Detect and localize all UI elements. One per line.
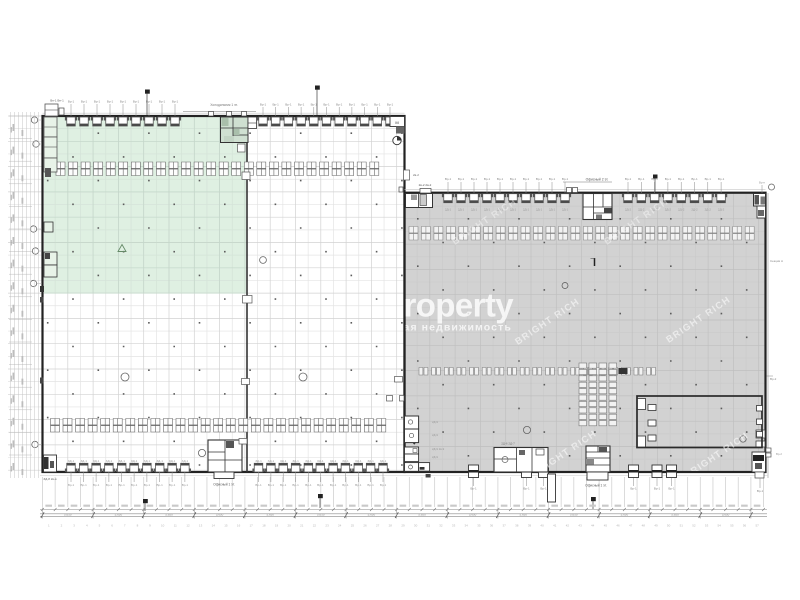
svg-text:Вр-1: Вр-1: [361, 103, 368, 107]
svg-text:Вр-1: Вр-1: [317, 483, 324, 487]
svg-text:36: 36: [490, 524, 494, 528]
svg-text:Вр-1: Вр-1: [292, 483, 299, 487]
svg-text:Вр-1: Вр-1: [68, 100, 75, 104]
svg-text:ЗД-1: ЗД-1: [280, 459, 287, 463]
svg-text:2Д-2: 2Д-2: [625, 208, 632, 212]
svg-text:Офисный 2 эт.: Офисный 2 эт.: [586, 178, 609, 182]
svg-text:Холодильник 1 эт.: Холодильник 1 эт.: [210, 103, 238, 107]
svg-text:ЗД-1: ЗД-1: [380, 459, 387, 463]
svg-text:Вр-1: Вр-1: [471, 177, 478, 181]
svg-text:28: 28: [389, 524, 393, 528]
svg-text:Вр-1: Вр-1: [120, 100, 127, 104]
svg-text:2Д-9: 2Д-9: [432, 433, 438, 437]
svg-text:50: 50: [667, 524, 671, 528]
svg-text:Вр-1: Вр-1: [280, 483, 287, 487]
svg-text:2Д-1: 2Д-1: [445, 208, 452, 212]
svg-text:Вр-1: Вр-1: [81, 100, 88, 104]
svg-text:Вр-1: Вр-1: [625, 177, 632, 181]
svg-text:41: 41: [553, 524, 557, 528]
svg-text:ЗД-1: ЗД-1: [255, 459, 262, 463]
svg-text:Вр-1: Вр-1: [470, 487, 477, 491]
svg-text:2Д-9 2в-9: 2Д-9 2в-9: [432, 447, 445, 451]
svg-text:ЗД-1: ЗД-1: [144, 459, 151, 463]
svg-text:Вр-1: Вр-1: [630, 487, 637, 491]
svg-text:Вр-1: Вр-1: [523, 177, 530, 181]
svg-text:Вр-1: Вр-1: [638, 177, 645, 181]
svg-text:ЗД-1: ЗД-1: [355, 459, 362, 463]
svg-text:Вр-1: Вр-1: [182, 483, 189, 487]
svg-text:Вр-1: Вр-1: [159, 100, 166, 104]
svg-text:ЗД-1: ЗД-1: [106, 459, 113, 463]
svg-text:5,650: 5,650: [519, 513, 527, 517]
svg-text:ЗД-1: ЗД-1: [169, 459, 176, 463]
svg-text:5,650: 5,650: [722, 513, 730, 517]
svg-text:51: 51: [680, 524, 684, 528]
svg-text:31: 31: [427, 524, 431, 528]
svg-text:2Д-1: 2Д-1: [458, 208, 465, 212]
svg-text:Вр-1: Вр-1: [523, 487, 530, 491]
svg-text:2Д-6 2Д-7: 2Д-6 2Д-7: [501, 442, 515, 446]
svg-text:22: 22: [313, 524, 317, 528]
svg-text:Вр-1: Вр-1: [458, 177, 465, 181]
svg-text:ЗД-1: ЗД-1: [317, 459, 324, 463]
svg-text:49: 49: [654, 524, 658, 528]
svg-text:Вр-1: Вр-1: [484, 177, 491, 181]
svg-text:Вр-1: Вр-1: [268, 483, 275, 487]
svg-text:Вр-1: Вр-1: [133, 100, 140, 104]
svg-text:45: 45: [604, 524, 608, 528]
svg-text:18: 18: [262, 524, 266, 528]
svg-text:ЗД-1: ЗД-1: [182, 459, 189, 463]
svg-text:19: 19: [275, 524, 279, 528]
svg-text:5,650: 5,650: [418, 513, 426, 517]
svg-text:27: 27: [376, 524, 380, 528]
svg-text:Вр-1: Вр-1: [323, 103, 330, 107]
svg-text:26: 26: [363, 524, 367, 528]
svg-text:29: 29: [401, 524, 405, 528]
svg-text:2Д-2: 2Д-2: [705, 208, 712, 212]
svg-text:ЗД-1: ЗД-1: [292, 459, 299, 463]
svg-text:Вр-1: Вр-1: [68, 483, 75, 487]
svg-text:42: 42: [566, 524, 570, 528]
svg-text:23: 23: [325, 524, 329, 528]
svg-text:Вр-1: Вр-1: [536, 177, 543, 181]
svg-text:35: 35: [477, 524, 481, 528]
svg-text:ЗД-8 2в-в: ЗД-8 2в-в: [43, 477, 57, 481]
svg-text:Вр-1: Вр-1: [144, 483, 151, 487]
svg-text:5,650: 5,650: [165, 513, 173, 517]
svg-text:13: 13: [199, 524, 203, 528]
svg-text:Вр-1: Вр-1: [387, 103, 394, 107]
svg-text:Вр-1: Вр-1: [107, 100, 114, 104]
svg-text:2в-2 2в-2: 2в-2 2в-2: [419, 183, 432, 187]
svg-text:Вр-1: Вр-1: [380, 483, 387, 487]
svg-text:Вр-1: Вр-1: [255, 483, 262, 487]
svg-text:5,650: 5,650: [216, 513, 224, 517]
svg-text:21: 21: [300, 524, 304, 528]
svg-text:11: 11: [174, 524, 177, 528]
svg-text:Вр-1: Вр-1: [106, 483, 113, 487]
svg-text:Вр-1: Вр-1: [172, 100, 179, 104]
svg-text:44: 44: [591, 524, 595, 528]
svg-text:53: 53: [705, 524, 709, 528]
svg-text:Вр-1: Вр-1: [355, 483, 362, 487]
svg-text:Вн-1 Вн-1: Вн-1 Вн-1: [50, 99, 64, 103]
svg-text:Вр-1: Вр-1: [374, 103, 381, 107]
svg-text:2Д-1: 2Д-1: [471, 208, 478, 212]
svg-text:17: 17: [250, 524, 254, 528]
svg-text:57: 57: [756, 524, 760, 528]
svg-text:Вр-2: Вр-2: [776, 452, 782, 456]
svg-text:Вр-1: Вр-1: [260, 103, 267, 107]
svg-text:Вр-1: Вр-1: [510, 177, 517, 181]
svg-text:33: 33: [452, 524, 456, 528]
svg-text:37: 37: [503, 524, 507, 528]
svg-text:2Д-9: 2Д-9: [432, 420, 438, 424]
svg-text:30: 30: [414, 524, 418, 528]
svg-text:5,650: 5,650: [266, 513, 274, 517]
svg-text:Вр-1: Вр-1: [665, 177, 672, 181]
svg-text:Вр-1: Вр-1: [169, 483, 176, 487]
svg-text:Вр-н: Вр-н: [759, 181, 765, 185]
svg-text:ЗД-1: ЗД-1: [68, 459, 75, 463]
svg-text:39: 39: [528, 524, 532, 528]
svg-text:2в-2: 2в-2: [413, 173, 419, 177]
svg-text:55: 55: [730, 524, 734, 528]
svg-text:24: 24: [338, 524, 342, 528]
svg-text:ЗД-1: ЗД-1: [118, 459, 125, 463]
svg-text:ЗД-1: ЗД-1: [367, 459, 374, 463]
svg-text:5,650: 5,650: [115, 513, 123, 517]
svg-text:Вр-1: Вр-1: [540, 487, 547, 491]
svg-text:54: 54: [718, 524, 722, 528]
svg-text:56: 56: [743, 524, 747, 528]
svg-text:15: 15: [224, 524, 228, 528]
svg-text:Вр-1: Вр-1: [691, 177, 698, 181]
svg-text:40: 40: [540, 524, 544, 528]
svg-text:Вр-1: Вр-1: [93, 483, 100, 487]
svg-text:47: 47: [629, 524, 633, 528]
svg-text:Вр-1: Вр-1: [336, 103, 343, 107]
svg-text:Вр-1: Вр-1: [81, 483, 88, 487]
svg-text:12: 12: [186, 524, 190, 528]
svg-text:Вр-1: Вр-1: [654, 487, 661, 491]
svg-text:ЗД-1: ЗД-1: [330, 459, 337, 463]
svg-text:48: 48: [642, 524, 646, 528]
svg-text:52: 52: [692, 524, 696, 528]
svg-text:14: 14: [212, 524, 216, 528]
svg-text:16: 16: [237, 524, 241, 528]
svg-text:43: 43: [578, 524, 582, 528]
svg-text:5,650: 5,650: [317, 513, 325, 517]
svg-text:Вр-1: Вр-1: [94, 100, 101, 104]
svg-text:Вр-1: Вр-1: [718, 177, 725, 181]
svg-text:Вр-1: Вр-1: [298, 103, 305, 107]
svg-text:Вр-1: Вр-1: [273, 103, 280, 107]
svg-text:Офисный 1 эт.: Офисный 1 эт.: [213, 483, 235, 487]
svg-text:34: 34: [465, 524, 469, 528]
svg-text:Вр-1: Вр-1: [562, 177, 569, 181]
svg-text:ая недвижимость: ая недвижимость: [404, 322, 512, 334]
svg-text:2Д-2: 2Д-2: [718, 208, 725, 212]
svg-text:Вр-1: Вр-1: [119, 483, 126, 487]
svg-text:5,650: 5,650: [570, 513, 578, 517]
svg-text:2Д-1: 2Д-1: [523, 208, 530, 212]
svg-text:2Д-2: 2Д-2: [691, 208, 698, 212]
svg-text:Вр-1: Вр-1: [705, 177, 712, 181]
svg-text:20: 20: [288, 524, 292, 528]
svg-text:Вр-1: Вр-1: [668, 487, 675, 491]
svg-text:2Д-1: 2Д-1: [549, 208, 556, 212]
svg-text:Вр-1: Вр-1: [285, 103, 292, 107]
svg-text:Вр-2: Вр-2: [770, 377, 777, 381]
svg-text:25: 25: [351, 524, 355, 528]
svg-text:Вр-1: Вр-1: [330, 483, 337, 487]
svg-text:2Д-9: 2Д-9: [432, 455, 438, 459]
svg-text:M: M: [395, 120, 398, 125]
svg-text:Вр-1: Вр-1: [367, 483, 374, 487]
svg-text:ЗД-1: ЗД-1: [80, 459, 87, 463]
svg-text:5,650: 5,650: [469, 513, 477, 517]
svg-text:Вр-1: Вр-1: [342, 483, 349, 487]
svg-text:Офисный 1 эт.: Офисный 1 эт.: [585, 484, 607, 488]
svg-text:Секция А: Секция А: [770, 259, 783, 263]
svg-text:Вр-1: Вр-1: [757, 489, 764, 493]
svg-text:ЗД-1: ЗД-1: [305, 459, 312, 463]
svg-text:38: 38: [515, 524, 519, 528]
svg-text:5,650: 5,650: [64, 513, 72, 517]
svg-text:5,650: 5,650: [671, 513, 679, 517]
svg-text:Вр-1: Вр-1: [157, 483, 164, 487]
svg-text:5,650: 5,650: [621, 513, 629, 517]
svg-text:ЗД-1: ЗД-1: [342, 459, 349, 463]
svg-text:32: 32: [439, 524, 443, 528]
svg-text:2Д-1: 2Д-1: [562, 208, 569, 212]
svg-text:ЗД-1: ЗД-1: [131, 459, 138, 463]
svg-text:Вр-1: Вр-1: [131, 483, 138, 487]
svg-text:46: 46: [616, 524, 620, 528]
svg-text:10: 10: [161, 524, 165, 528]
svg-text:Вр-1: Вр-1: [678, 177, 685, 181]
svg-text:ЗД-1: ЗД-1: [156, 459, 163, 463]
svg-text:Вр-1: Вр-1: [549, 177, 556, 181]
svg-text:Вр-1: Вр-1: [445, 177, 452, 181]
svg-text:Вр-1: Вр-1: [349, 103, 356, 107]
svg-text:2Д-1: 2Д-1: [536, 208, 543, 212]
svg-text:roperty: roperty: [404, 287, 515, 324]
svg-text:ЗД-1: ЗД-1: [268, 459, 275, 463]
svg-text:2Д-2: 2Д-2: [678, 208, 685, 212]
svg-text:Вр-1: Вр-1: [305, 483, 312, 487]
svg-text:Вр-1: Вр-1: [497, 177, 504, 181]
svg-text:Вр-1: Вр-1: [311, 103, 318, 107]
svg-text:ЗД-1: ЗД-1: [93, 459, 100, 463]
svg-text:5,650: 5,650: [368, 513, 376, 517]
